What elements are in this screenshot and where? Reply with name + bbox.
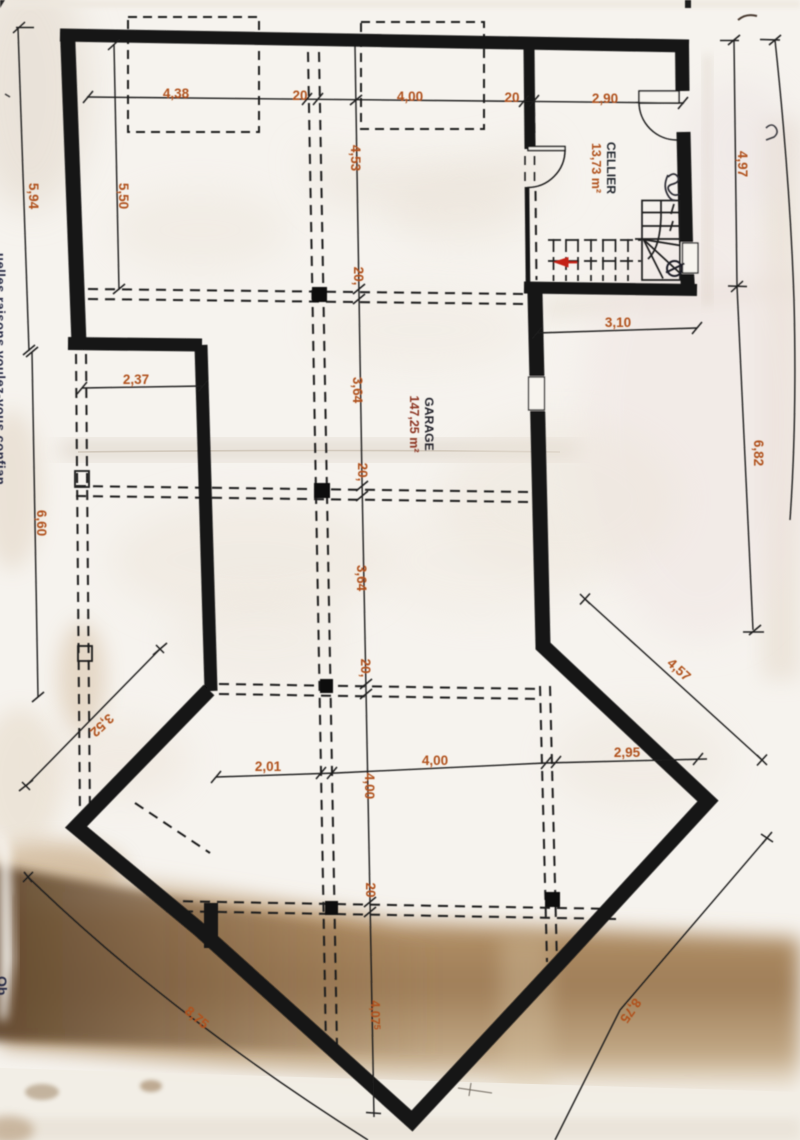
svg-text:GARAGE: GARAGE [422,397,436,451]
svg-text:4,00: 4,00 [397,89,423,104]
svg-text:20,: 20, [355,463,370,482]
svg-text:4,97: 4,97 [735,151,750,177]
svg-text:2,90: 2,90 [592,91,618,106]
svg-text:20: 20 [504,90,519,105]
svg-text:3,10: 3,10 [605,315,631,330]
svg-text:4,38: 4,38 [163,86,190,101]
svg-text:Ob: Ob [0,976,10,995]
svg-text:147,25 m²: 147,25 m² [407,396,421,453]
svg-text:2,37: 2,37 [123,372,149,387]
svg-text:4,00: 4,00 [422,753,448,768]
svg-text:uelles raisons voulez-vous con: uelles raisons voulez-vous confian [0,253,8,485]
svg-text:6,60: 6,60 [34,510,49,536]
svg-text:6,82: 6,82 [751,440,766,466]
svg-text:4,53: 4,53 [348,145,363,172]
svg-text:5,94: 5,94 [26,183,41,210]
svg-text:20,: 20, [358,659,373,678]
svg-text:3,64: 3,64 [350,377,365,404]
svg-text:2,01: 2,01 [255,759,282,774]
svg-text:3,64: 3,64 [354,565,369,592]
svg-text:13,73 m²: 13,73 m² [589,143,603,193]
svg-text:20,: 20, [351,267,366,286]
svg-text:5,50: 5,50 [116,183,131,209]
svg-text:4,00: 4,00 [362,773,377,799]
svg-text:CELLIER: CELLIER [604,142,618,194]
svg-text:2,95: 2,95 [614,745,641,760]
svg-text:20: 20 [292,88,307,103]
svg-text:20: 20 [363,882,378,897]
